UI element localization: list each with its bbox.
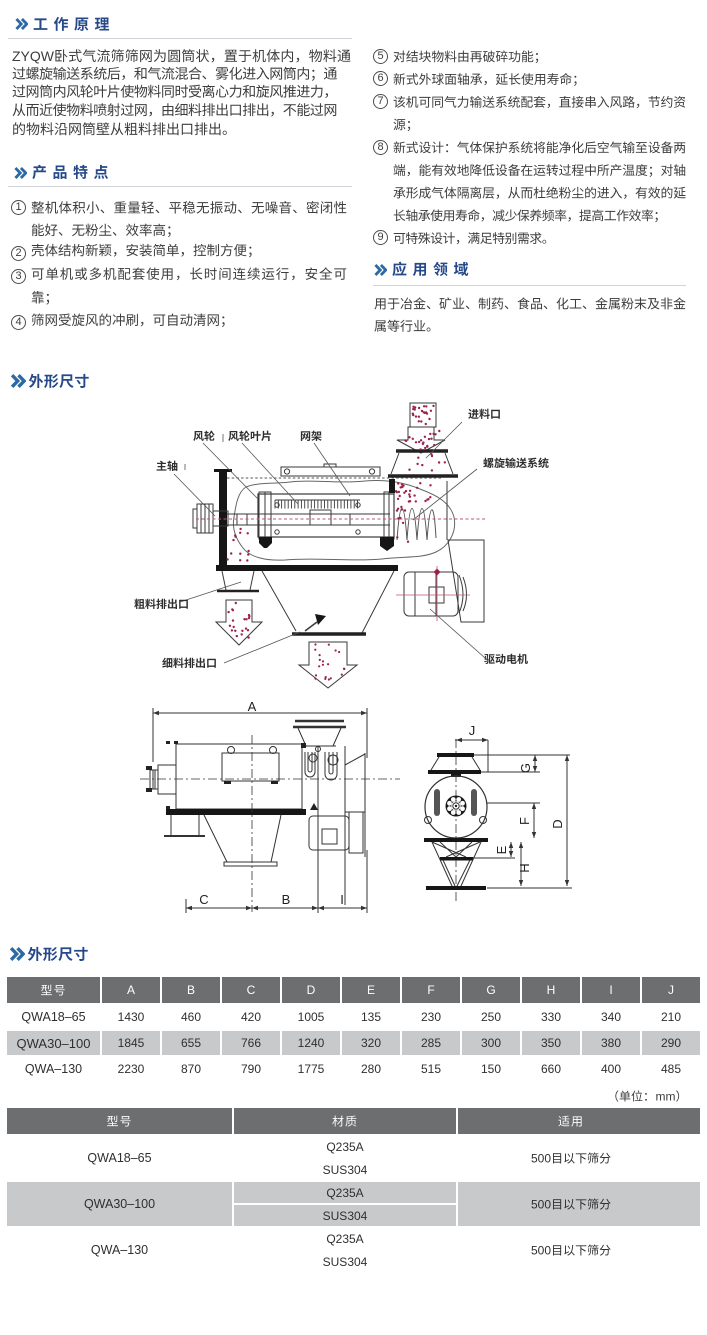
svg-text:F: F (517, 817, 532, 825)
svg-text:I: I (340, 892, 344, 907)
svg-text:E: E (494, 845, 509, 854)
svg-text:B: B (282, 892, 291, 907)
svg-text:D: D (550, 819, 565, 828)
svg-text:A: A (248, 700, 257, 714)
svg-text:J: J (469, 723, 476, 738)
svg-text:H: H (517, 863, 532, 872)
svg-text:C: C (199, 892, 208, 907)
svg-text:G: G (518, 763, 533, 773)
